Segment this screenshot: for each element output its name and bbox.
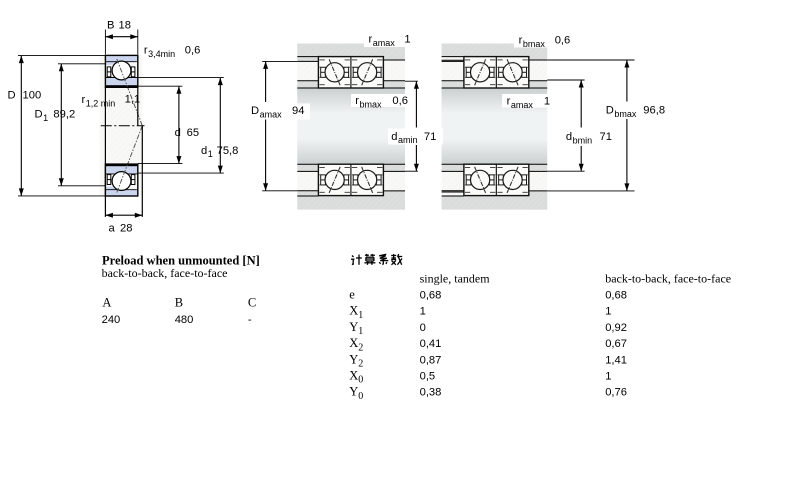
svg-text:240: 240 bbox=[102, 314, 121, 326]
svg-text:0,68: 0,68 bbox=[420, 290, 442, 302]
svg-text:1,1: 1,1 bbox=[125, 94, 141, 106]
svg-text:0,76: 0,76 bbox=[605, 387, 627, 399]
svg-text:0,68: 0,68 bbox=[605, 290, 627, 302]
svg-text:0,67: 0,67 bbox=[605, 338, 627, 350]
svg-text:D100: D100 bbox=[8, 90, 42, 102]
svg-text:B: B bbox=[175, 295, 183, 309]
svg-text:0,38: 0,38 bbox=[420, 387, 442, 399]
svg-text:0,41: 0,41 bbox=[420, 338, 442, 350]
svg-text:1: 1 bbox=[605, 371, 611, 383]
svg-text:e: e bbox=[349, 288, 355, 302]
svg-text:1: 1 bbox=[420, 306, 426, 318]
svg-text:single, tandem: single, tandem bbox=[420, 271, 491, 285]
svg-text:0: 0 bbox=[420, 322, 426, 334]
svg-text:0,5: 0,5 bbox=[420, 371, 436, 383]
svg-text:back-to-back, face-to-face: back-to-back, face-to-face bbox=[605, 271, 731, 285]
svg-text:a28: a28 bbox=[109, 222, 133, 234]
svg-text:B18: B18 bbox=[107, 20, 131, 32]
svg-text:d65: d65 bbox=[175, 127, 199, 139]
svg-text:C: C bbox=[248, 295, 256, 309]
svg-text:0,92: 0,92 bbox=[605, 322, 627, 334]
svg-text:-: - bbox=[248, 314, 252, 326]
svg-text:1: 1 bbox=[605, 306, 611, 318]
svg-text:480: 480 bbox=[175, 314, 194, 326]
svg-text:back-to-back, face-to-face: back-to-back, face-to-face bbox=[102, 266, 228, 280]
svg-text:1,41: 1,41 bbox=[605, 354, 627, 366]
svg-text:A: A bbox=[102, 295, 111, 309]
svg-text:0,87: 0,87 bbox=[420, 354, 442, 366]
